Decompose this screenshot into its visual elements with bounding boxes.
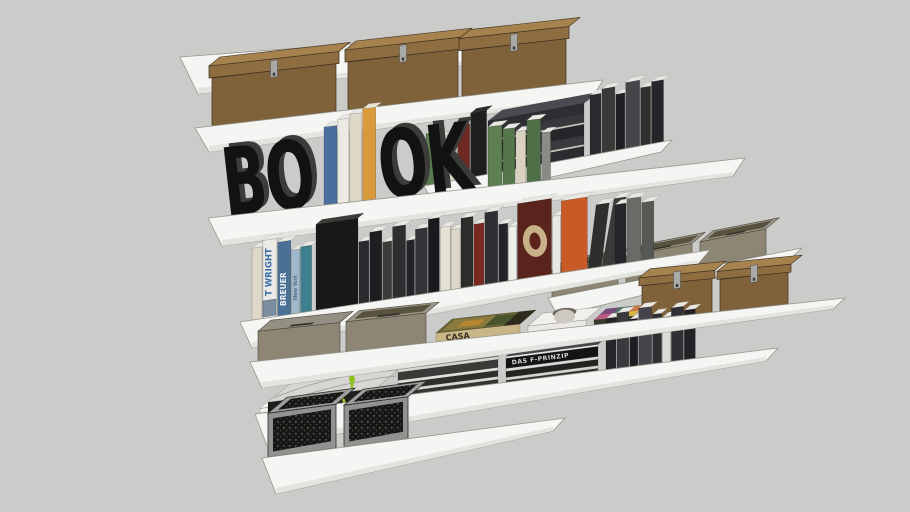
viewer-background: BOBOOKOKT WRIGHTBREUERNew YorkCASAHADIDD…	[0, 0, 910, 512]
spine-label-newyork: New York	[293, 274, 299, 300]
hadid-green-logo	[349, 376, 355, 383]
svg-text:BREUER: BREUER	[279, 272, 288, 306]
wright-cover-photo	[263, 299, 276, 317]
svg-text:T WRIGHT: T WRIGHT	[265, 248, 275, 296]
wooden-box-small-2	[717, 255, 802, 311]
svg-text:New York: New York	[293, 274, 299, 300]
model-viewport[interactable]: BOBOOKOKT WRIGHTBREUERNew YorkCASAHADIDD…	[0, 0, 910, 512]
spine-label-wright: T WRIGHT	[265, 248, 275, 296]
spine-label-breuer: BREUER	[279, 272, 288, 306]
